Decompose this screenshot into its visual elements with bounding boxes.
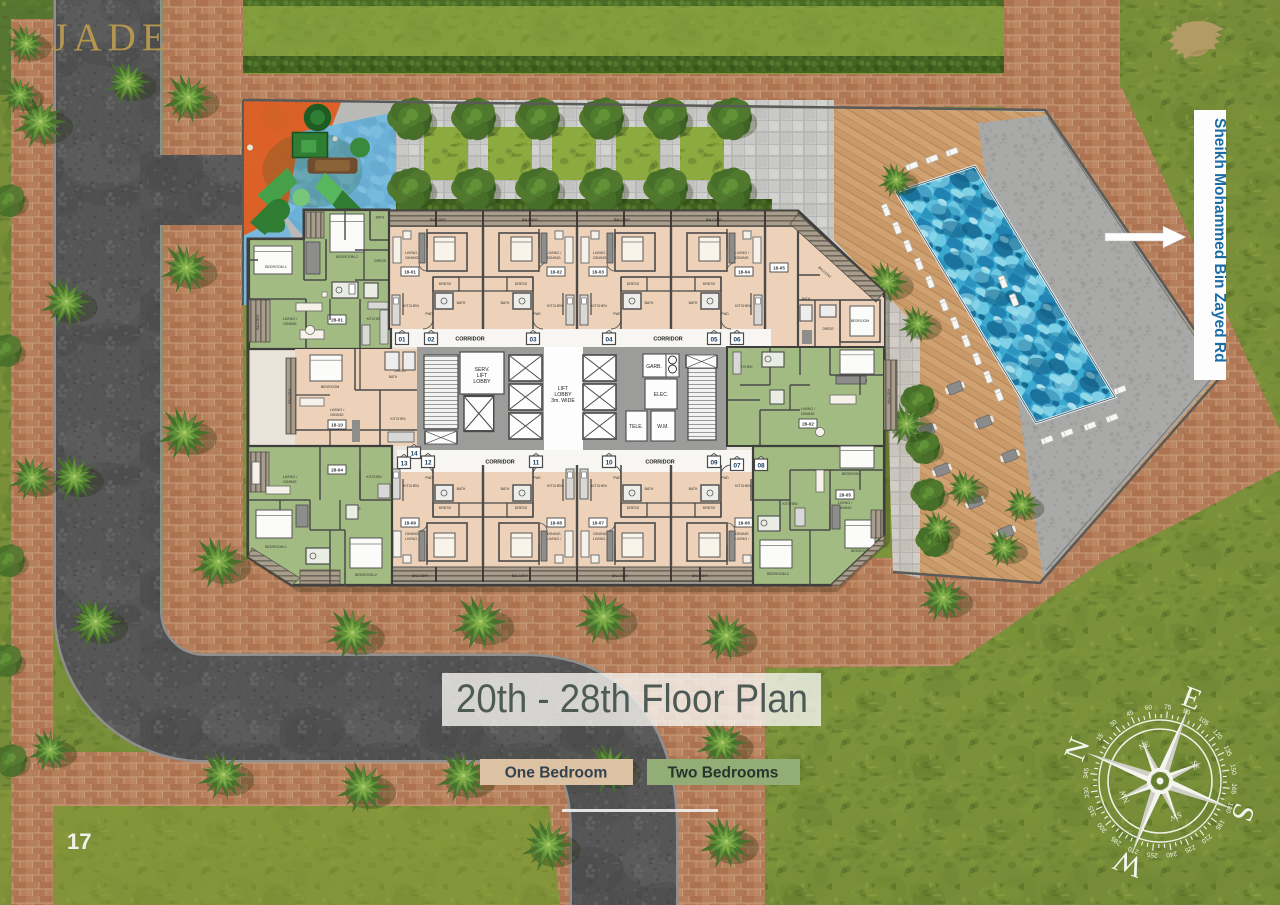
- svg-text:17: 17: [67, 829, 91, 854]
- svg-text:DRESS: DRESS: [703, 282, 716, 286]
- svg-text:DRESS: DRESS: [627, 282, 640, 286]
- svg-text:BALCONY: BALCONY: [512, 574, 529, 578]
- svg-text:CORRIDOR: CORRIDOR: [645, 460, 674, 466]
- svg-text:BATH: BATH: [645, 487, 654, 491]
- svg-text:28-04: 28-04: [331, 468, 343, 473]
- svg-text:One Bedroom: One Bedroom: [505, 765, 607, 782]
- svg-text:DINING: DINING: [801, 412, 814, 416]
- svg-text:DRESS: DRESS: [515, 282, 528, 286]
- svg-text:02: 02: [427, 336, 435, 343]
- svg-text:DINING: DINING: [405, 532, 418, 536]
- svg-text:DINING: DINING: [330, 413, 343, 417]
- svg-text:DRESS: DRESS: [439, 282, 452, 286]
- svg-text:BEDROOM-2: BEDROOM-2: [355, 573, 377, 577]
- svg-text:KITCHEN: KITCHEN: [547, 304, 563, 308]
- svg-text:BALCONY: BALCONY: [706, 218, 723, 222]
- svg-text:CORRIDOR: CORRIDOR: [455, 337, 484, 343]
- svg-text:DINING: DINING: [283, 480, 296, 484]
- svg-text:LIVING /: LIVING /: [283, 317, 299, 321]
- svg-text:PWD: PWD: [721, 312, 729, 316]
- svg-text:DRESS: DRESS: [703, 506, 716, 510]
- svg-text:ELEC.: ELEC.: [654, 392, 668, 398]
- svg-text:LIVING /: LIVING /: [547, 251, 563, 255]
- svg-text:18-10: 18-10: [331, 423, 343, 428]
- svg-text:DINING: DINING: [547, 532, 560, 536]
- svg-text:BALCONY: BALCONY: [522, 218, 539, 222]
- svg-text:KITCHEN: KITCHEN: [591, 304, 607, 308]
- svg-text:10: 10: [605, 459, 613, 466]
- svg-text:03: 03: [529, 336, 537, 343]
- svg-text:18-08: 18-08: [550, 521, 562, 526]
- svg-text:18-02: 18-02: [550, 270, 562, 275]
- svg-text:20th - 28th Floor Plan: 20th - 28th Floor Plan: [456, 677, 808, 721]
- svg-text:04: 04: [605, 336, 613, 343]
- svg-text:BATH: BATH: [645, 301, 654, 305]
- svg-text:18-01: 18-01: [404, 270, 416, 275]
- svg-text:Two Bedrooms: Two Bedrooms: [668, 765, 779, 782]
- svg-text:PWD: PWD: [533, 476, 541, 480]
- svg-text:18-04: 18-04: [738, 270, 750, 275]
- svg-text:DRESS: DRESS: [374, 259, 386, 263]
- svg-text:DINING: DINING: [283, 322, 296, 326]
- svg-text:BATH: BATH: [689, 487, 698, 491]
- svg-text:BALCONY: BALCONY: [256, 314, 260, 330]
- svg-text:DINING: DINING: [593, 532, 606, 536]
- svg-text:JADE: JADE: [52, 16, 171, 59]
- svg-text:BEDROOM-1: BEDROOM-1: [265, 265, 287, 269]
- svg-text:28-05: 28-05: [839, 493, 851, 498]
- svg-text:KITCHEN: KITCHEN: [547, 484, 563, 488]
- svg-text:BATH: BATH: [389, 375, 398, 379]
- svg-text:11: 11: [533, 459, 540, 466]
- svg-text:BEDROOM: BEDROOM: [321, 385, 340, 389]
- svg-text:W.M.: W.M.: [657, 424, 668, 430]
- svg-text:BEDROOM-2: BEDROOM-2: [767, 572, 789, 576]
- svg-text:06: 06: [733, 336, 741, 343]
- svg-text:BALCONY: BALCONY: [430, 218, 447, 222]
- svg-text:GARB.: GARB.: [646, 364, 662, 370]
- svg-text:3m. WIDE: 3m. WIDE: [551, 398, 575, 404]
- svg-text:12: 12: [424, 459, 432, 466]
- svg-text:BEDROOM-2: BEDROOM-2: [336, 255, 358, 259]
- svg-text:BATH: BATH: [457, 487, 466, 491]
- svg-text:DRESS: DRESS: [439, 506, 452, 510]
- svg-text:BEDROOM: BEDROOM: [851, 319, 870, 323]
- svg-text:LIVING /: LIVING /: [593, 537, 609, 541]
- svg-text:DRESS: DRESS: [515, 506, 528, 510]
- svg-text:PWD: PWD: [425, 476, 433, 480]
- svg-text:BATH: BATH: [501, 301, 510, 305]
- svg-text:CORRIDOR: CORRIDOR: [485, 460, 514, 466]
- svg-text:LIVING /: LIVING /: [801, 407, 817, 411]
- svg-text:BEDROOM-1: BEDROOM-1: [265, 545, 287, 549]
- svg-text:18-07: 18-07: [592, 521, 604, 526]
- svg-text:KITCHEN: KITCHEN: [735, 484, 751, 488]
- svg-text:345: 345: [1083, 767, 1091, 779]
- svg-text:LIVING /: LIVING /: [330, 408, 346, 412]
- svg-text:DRESS: DRESS: [627, 506, 640, 510]
- svg-text:BATH: BATH: [457, 301, 466, 305]
- svg-text:01: 01: [398, 336, 406, 343]
- svg-text:PWD: PWD: [721, 476, 729, 480]
- svg-text:255: 255: [1146, 850, 1158, 858]
- svg-text:BALCONY: BALCONY: [692, 574, 709, 578]
- svg-text:BALCONY: BALCONY: [612, 574, 629, 578]
- svg-text:PWD: PWD: [613, 312, 621, 316]
- svg-text:LIVING /: LIVING /: [405, 251, 421, 255]
- svg-text:18-09: 18-09: [404, 521, 416, 526]
- svg-text:DINING: DINING: [735, 256, 748, 260]
- svg-text:BATH: BATH: [802, 297, 811, 301]
- svg-text:LIVING /: LIVING /: [593, 251, 609, 255]
- svg-text:BALCONY: BALCONY: [887, 388, 891, 404]
- svg-text:18-06: 18-06: [738, 521, 750, 526]
- svg-text:BATH: BATH: [501, 487, 510, 491]
- svg-text:LOBBY: LOBBY: [473, 379, 491, 385]
- svg-text:BEDROOM: BEDROOM: [842, 472, 861, 476]
- svg-text:75: 75: [1164, 704, 1172, 712]
- svg-text:DINING: DINING: [593, 256, 606, 260]
- svg-text:LIVING /: LIVING /: [283, 475, 299, 479]
- svg-text:KITCHEN: KITCHEN: [367, 475, 382, 479]
- svg-text:KITCHEN: KITCHEN: [783, 502, 798, 506]
- svg-text:13: 13: [400, 460, 408, 467]
- svg-text:BATH: BATH: [689, 301, 698, 305]
- svg-text:165: 165: [1229, 783, 1237, 795]
- svg-text:18-03: 18-03: [592, 270, 604, 275]
- svg-text:28-02: 28-02: [802, 422, 814, 427]
- svg-text:PWD: PWD: [425, 312, 433, 316]
- svg-text:DINING: DINING: [735, 532, 748, 536]
- svg-text:LIVING /: LIVING /: [405, 537, 421, 541]
- svg-text:KITCHEN: KITCHEN: [735, 304, 751, 308]
- svg-text:BALCONY: BALCONY: [412, 574, 429, 578]
- svg-text:07: 07: [733, 462, 741, 469]
- svg-text:28-01: 28-01: [331, 318, 343, 323]
- svg-text:LIVING /: LIVING /: [735, 251, 751, 255]
- svg-text:BALCONY: BALCONY: [614, 218, 631, 222]
- svg-text:LIVING /: LIVING /: [838, 501, 854, 505]
- svg-text:BALCONY: BALCONY: [288, 388, 292, 404]
- svg-text:KITCHEN: KITCHEN: [403, 484, 419, 488]
- svg-text:BATH: BATH: [376, 216, 385, 220]
- svg-text:08: 08: [757, 462, 765, 469]
- svg-text:09: 09: [710, 459, 718, 466]
- svg-text:PWD: PWD: [533, 312, 541, 316]
- svg-text:DINING: DINING: [405, 256, 418, 260]
- svg-text:TELE.: TELE.: [629, 424, 643, 430]
- svg-text:LIVING /: LIVING /: [547, 537, 563, 541]
- svg-text:LIVING /: LIVING /: [735, 537, 751, 541]
- svg-text:05: 05: [710, 336, 718, 343]
- svg-text:CORRIDOR: CORRIDOR: [653, 337, 682, 343]
- svg-text:DINING: DINING: [547, 256, 560, 260]
- svg-text:Sheikh Mohammed Bin Zayed Rd: Sheikh Mohammed Bin Zayed Rd: [1211, 118, 1228, 363]
- svg-text:18-05: 18-05: [773, 266, 785, 271]
- svg-text:PWD: PWD: [613, 476, 621, 480]
- svg-text:DRESS: DRESS: [823, 327, 834, 331]
- svg-text:KITCHEN: KITCHEN: [591, 484, 607, 488]
- svg-text:60: 60: [1144, 704, 1153, 712]
- svg-text:KITCHEN: KITCHEN: [403, 304, 419, 308]
- svg-text:14: 14: [410, 450, 418, 457]
- svg-text:KITCHEN: KITCHEN: [391, 417, 406, 421]
